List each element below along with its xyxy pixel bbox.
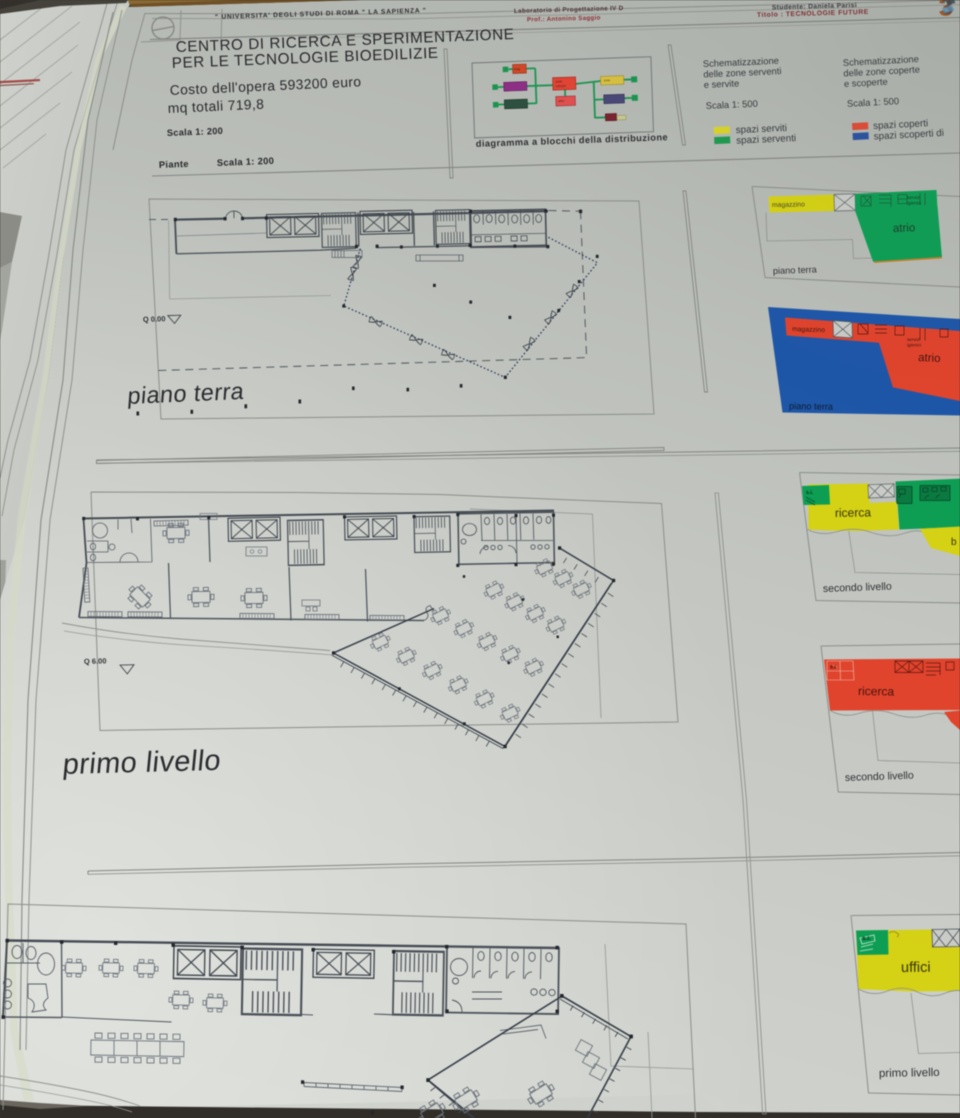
svg-text:primo livello: primo livello	[61, 745, 222, 781]
svg-text:piano terra: piano terra	[127, 378, 246, 409]
svg-text:b: b	[951, 537, 957, 548]
svg-text:s.i.: s.i.	[830, 665, 838, 671]
svg-text:uffici: uffici	[901, 960, 931, 976]
svg-text:Scala 1: 200: Scala 1: 200	[217, 155, 275, 168]
svg-text:secondo livello: secondo livello	[845, 770, 914, 784]
svg-text:Q 6.00: Q 6.00	[84, 656, 107, 666]
svg-text:primo livello: primo livello	[879, 1067, 940, 1080]
svg-text:Piante: Piante	[159, 158, 189, 170]
svg-text:secondo livello: secondo livello	[823, 581, 892, 595]
svg-text:s.i.: s.i.	[862, 935, 871, 942]
svg-text:ricerca: ricerca	[858, 684, 895, 699]
svg-text:Q 0.00: Q 0.00	[143, 314, 166, 324]
